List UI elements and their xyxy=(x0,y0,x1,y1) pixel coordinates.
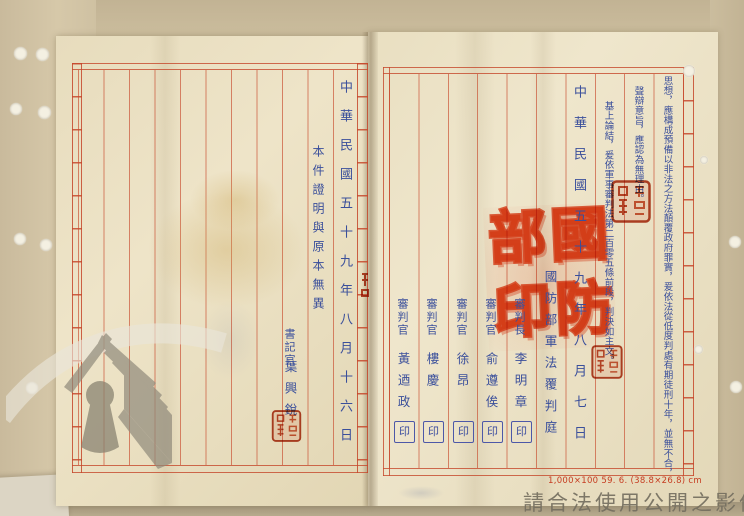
scanned-document: 中華民國五十九年八月十六日 本件證明與原本無異 書記官 葉興銳 思想，應構成預備… xyxy=(0,0,744,516)
reasoning-column-1: 思想，應構成預備以非法之方法顛覆政府罪實，爰依法從低度判處有期徒刑十年，並無不合… xyxy=(662,76,672,478)
judge-title: 審判官 xyxy=(426,298,437,337)
judge-title: 審判官 xyxy=(485,298,496,337)
fold-seal-fragment xyxy=(360,272,370,302)
judge-title: 審判官 xyxy=(456,298,467,337)
judge-seal-box: 印 xyxy=(511,421,532,443)
print-spec-note: 1,000×100 59. 6. (38.8×26.8) cm xyxy=(548,476,702,486)
punch-hole xyxy=(683,65,695,77)
punch-hole xyxy=(38,106,51,119)
punch-hole xyxy=(10,103,22,115)
ministry-seal-char: 部 xyxy=(487,207,547,267)
judge-name: 黃迺政 xyxy=(396,352,409,417)
judge-seal-box: 印 xyxy=(423,421,444,443)
judge-seal-box: 印 xyxy=(394,421,415,443)
binding-stitch-line xyxy=(357,63,368,473)
ink-smudge xyxy=(398,486,444,500)
punch-hole xyxy=(36,48,49,61)
bleed-through-stain xyxy=(190,170,280,230)
paper-chip xyxy=(700,156,708,164)
judge-name: 李明章 xyxy=(513,352,526,417)
small-red-seal xyxy=(611,180,651,223)
frame-line xyxy=(383,67,694,68)
court-name-column: 國防部軍法覆判庭 xyxy=(543,270,556,442)
reasoning-column-3: 基上論結，爰依軍事審判法第二百零五條前段，判決如主文。 xyxy=(603,101,613,366)
binding-stitch-line xyxy=(683,67,694,476)
usage-watermark-text: 請合法使用公開之影像 xyxy=(523,487,744,516)
small-red-seal xyxy=(590,345,624,379)
judge-seal-box: 印 xyxy=(482,421,503,443)
judge-seal-box: 印 xyxy=(453,421,474,443)
archives-logo-watermark xyxy=(6,305,228,483)
paper-chip xyxy=(694,345,703,354)
small-red-seal xyxy=(270,410,303,442)
punch-hole xyxy=(729,236,741,248)
frame-line xyxy=(383,67,384,476)
punch-hole xyxy=(730,381,742,393)
judge-title: 審判長 xyxy=(514,298,525,337)
judge-name: 俞遵俟 xyxy=(484,352,497,417)
punch-hole xyxy=(40,239,52,251)
certification-column: 本件證明與原本無異 xyxy=(312,145,324,316)
punch-hole xyxy=(14,233,26,245)
frame-line xyxy=(72,63,368,64)
punch-hole xyxy=(14,47,27,60)
judge-name: 樓慶 xyxy=(425,352,438,395)
judge-name: 徐昂 xyxy=(455,352,468,395)
judge-title: 審判官 xyxy=(397,298,408,337)
certification-date-column: 中華民國五十九年八月十六日 xyxy=(338,80,351,457)
judgment-date-column: 中華民國五十九年八月七日 xyxy=(572,85,585,457)
frame-line xyxy=(383,468,694,469)
